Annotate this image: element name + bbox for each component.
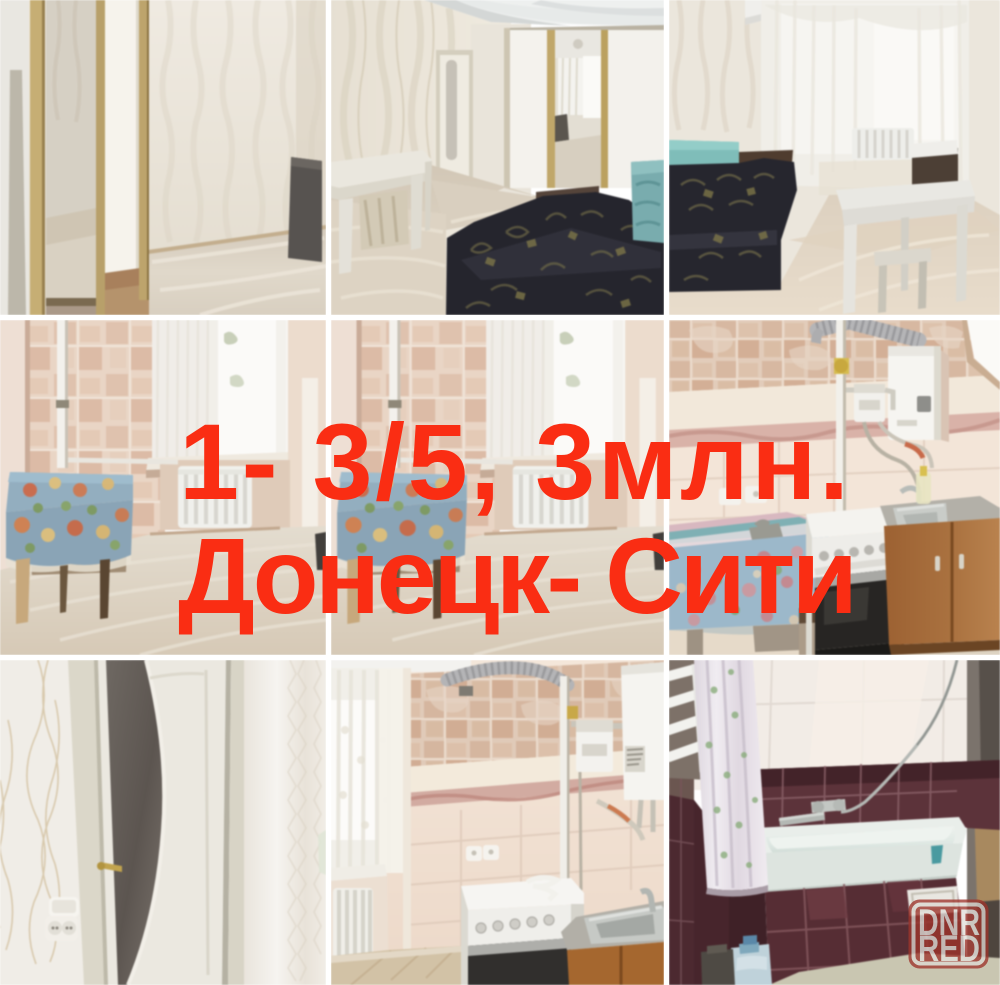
svg-text:RED: RED [918,928,980,969]
